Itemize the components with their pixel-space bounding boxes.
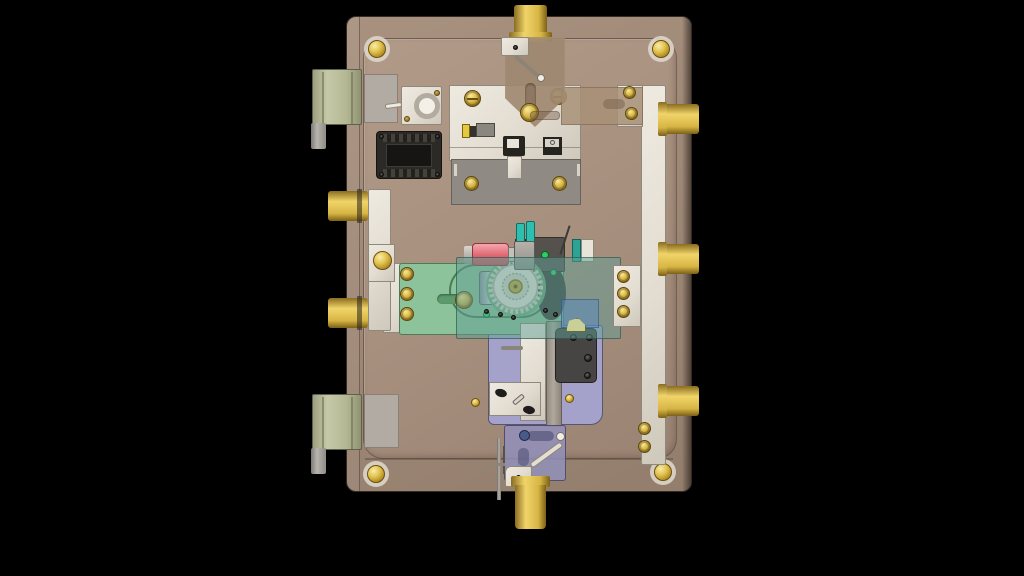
hinge-pin-bottom: [311, 448, 326, 474]
hinge-backing-plate-top: [364, 74, 398, 123]
plate-screw: [464, 90, 481, 107]
rail-screw: [638, 440, 651, 453]
pcb-dot: [543, 308, 548, 313]
panel-screw: [471, 398, 480, 407]
bracket-slot-h: [527, 431, 554, 441]
hinge-block-top: [312, 69, 362, 125]
plate-slot: [454, 164, 457, 176]
sensor-body: [476, 123, 495, 137]
relay-dot: [550, 140, 555, 145]
arm-screw: [400, 267, 414, 281]
adjust-slot: [501, 346, 523, 350]
dome-screw-bottom-left: [367, 465, 385, 483]
bracket-slot-v: [518, 448, 529, 466]
module-screw: [435, 172, 440, 177]
sensor-yellow: [462, 124, 470, 138]
switch-face: [507, 139, 519, 148]
hinge-backing-plate-bottom: [364, 394, 399, 448]
block-screw: [584, 372, 591, 379]
rail-screw: [617, 305, 630, 318]
locking-bolt-left-2: [328, 298, 368, 328]
capacitor: [526, 221, 535, 243]
pin-row: [383, 134, 435, 142]
bolt-flange: [658, 242, 667, 276]
hinge-ridge: [351, 397, 353, 449]
pcb-dot: [511, 315, 516, 320]
rail-screw: [623, 86, 636, 99]
locking-bolt-right-2: [661, 244, 699, 274]
plate-slot: [577, 164, 580, 176]
locking-bolt-left-1: [328, 191, 368, 221]
oval-screw: [494, 388, 508, 399]
oval-screw: [522, 405, 535, 415]
door-back-plate: [346, 16, 692, 492]
dome-screw-top-right: [652, 40, 670, 58]
bottom-locking-bolt: [515, 485, 546, 529]
switch-bracket: [507, 156, 522, 179]
link-bar-slot: [603, 99, 625, 109]
rail-screw: [617, 270, 630, 283]
shoulder-screw-blue: [519, 430, 530, 441]
pcb-dot: [484, 309, 489, 314]
locking-bolt-right-1: [661, 104, 699, 134]
switch-sub-plate: [489, 382, 541, 416]
actuator-rod-pin: [556, 432, 565, 441]
rail-screw: [617, 287, 630, 300]
arm-screw: [400, 307, 414, 321]
rail-screw: [638, 422, 651, 435]
dome-screw-bottom-right: [654, 463, 672, 481]
top-locking-bolt: [514, 5, 547, 33]
rail-left-pin: [373, 251, 392, 270]
bracket-slot-horizontal: [530, 111, 560, 120]
hinge-block-bottom: [312, 394, 362, 450]
module-screw: [379, 172, 384, 177]
locking-bolt-right-3: [661, 386, 699, 416]
pcb-dot: [498, 312, 503, 317]
render-canvas: [0, 0, 1024, 576]
screw-slot: [467, 98, 478, 100]
hinge-ridge: [351, 72, 353, 124]
hinge-ridge: [322, 397, 324, 449]
bolt-washer: [357, 296, 362, 330]
return-spring-rod: [497, 438, 501, 500]
dome-screw-top-left: [368, 40, 386, 58]
plate-screw: [552, 176, 567, 191]
bolt-flange: [658, 102, 667, 136]
relay: [543, 137, 562, 155]
solenoid-screw: [404, 116, 410, 122]
detent-pin: [512, 393, 525, 405]
panel-screw: [565, 394, 574, 403]
rotary-solenoid: [401, 86, 442, 125]
bolt-washer: [357, 189, 362, 223]
bolt-flange: [658, 384, 667, 418]
rail-screw: [625, 107, 638, 120]
connector-recess: [386, 144, 432, 167]
link-rod-pin: [537, 74, 545, 82]
arm-screw: [400, 287, 414, 301]
module-screw: [435, 134, 440, 139]
micro-switch: [503, 136, 525, 156]
pivot-anchor-bracket: [501, 37, 529, 56]
solenoid-screw: [434, 90, 440, 96]
module-screw: [379, 134, 384, 139]
connector-module: [376, 131, 442, 179]
hinge-ridge: [322, 72, 324, 124]
anchor-screw: [513, 45, 518, 50]
solenoid-ring: [414, 93, 440, 119]
pcb-dot: [553, 312, 558, 317]
plate-screw: [464, 176, 479, 191]
spring-tick: [492, 463, 505, 466]
pin-row: [383, 169, 435, 177]
block-screw: [584, 354, 592, 362]
hinge-pin-top: [311, 123, 326, 149]
